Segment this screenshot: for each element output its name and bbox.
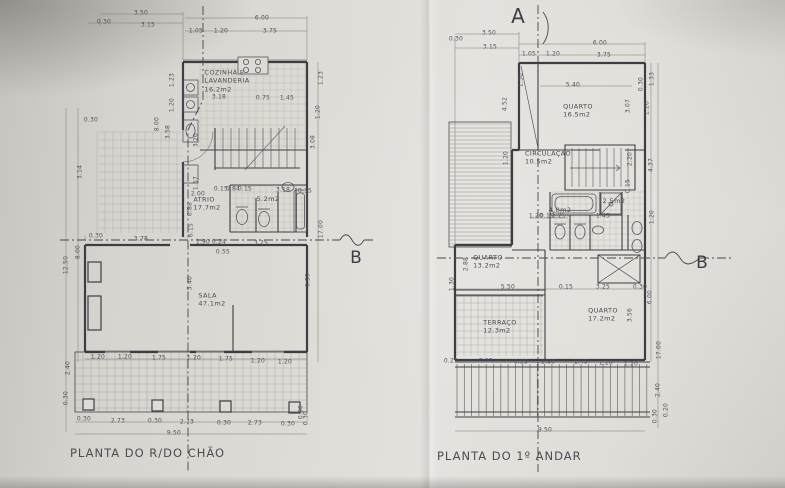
dimension-label: 2.73 <box>111 418 125 425</box>
dimension-label: 6.00 <box>647 290 654 304</box>
dimension-label: 3.56 <box>627 308 634 322</box>
dimension-label: 0.25 <box>444 358 458 365</box>
dimension-label: 0.35 <box>514 359 528 366</box>
room-label-line: CIRCULAÇÃO <box>525 150 571 158</box>
labels-layer: 3.500.303.156.001.051.203.751.231.201.23… <box>0 0 785 488</box>
dimension-label: 3.75 <box>263 28 277 35</box>
dimension-label: 3.75 <box>597 52 611 59</box>
dimension-label: 1.20 <box>546 51 560 58</box>
dimension-label: 0.15 <box>625 179 632 193</box>
room-label-line: 10.5m2 <box>525 158 571 166</box>
dimension-label: 5.40 <box>566 82 580 89</box>
dimension-label: 0.75 <box>256 95 270 102</box>
room-label-line: 4.0m2 <box>549 206 572 214</box>
dimension-label: 1.45 <box>574 359 588 366</box>
room-label-line: 17.7m2 <box>193 204 220 212</box>
dimension-label: 8.00 <box>154 117 161 131</box>
dimension-label: 1.80 <box>541 359 555 366</box>
room-label-line: TERRAÇO <box>483 319 517 327</box>
dimension-label: 0.55 <box>216 249 230 256</box>
dimension-label: 3.08 <box>310 135 317 149</box>
room-label-line: LAVANDERIA <box>204 77 249 85</box>
room-label-line: 13.2m2 <box>473 262 503 270</box>
dimension-label: 0.30 <box>217 420 231 427</box>
dimension-label: 1.20 <box>599 360 613 367</box>
dimension-label: 6.15 <box>188 223 195 237</box>
dimension-label: 1.75 <box>152 355 166 362</box>
dimension-label: 1.20 <box>315 105 322 119</box>
room-label-line: 2.5m2 <box>603 197 626 205</box>
dimension-label: 2.40 <box>65 361 72 375</box>
section-marker-b: B <box>350 248 362 268</box>
room-label-line: 17.2m2 <box>588 315 618 323</box>
room-label: CIRCULAÇÃO10.5m2 <box>525 150 571 167</box>
dimension-label: 1.45 <box>596 213 610 220</box>
dimension-label: 5.40 <box>187 276 194 290</box>
dimension-label: 0.20 <box>663 403 670 417</box>
room-label: QUARTO16.5m2 <box>563 103 593 120</box>
dimension-label: 1.57 <box>193 176 200 190</box>
dimension-label: 6.00 <box>593 40 607 47</box>
dimension-label: 3.78 <box>134 236 148 243</box>
room-label-line: QUARTO <box>588 307 618 315</box>
dimension-label: 0.15 <box>238 186 252 193</box>
room-label-line: 12.3m2 <box>483 327 517 335</box>
dimension-label: 6.00 <box>255 15 269 22</box>
dimension-label: 1.20 <box>649 210 656 224</box>
dimension-label: 12.50 <box>63 256 70 274</box>
dimension-label: 1.20 <box>644 101 651 115</box>
dimension-label: 3.50 <box>482 30 496 37</box>
room-label-line: 5.2m2 <box>257 195 280 203</box>
dimension-label: 0.30 <box>77 416 91 423</box>
dimension-label: 3.07 <box>625 99 632 113</box>
dimension-label: 2.73 <box>180 419 194 426</box>
room-label: QUARTO13.2m2 <box>473 254 503 271</box>
dimension-label: 0.30 <box>148 418 162 425</box>
dimension-label: 1.20 <box>624 361 638 368</box>
dimension-label: 17.00 <box>318 220 325 238</box>
dimension-label: 3.58 <box>165 125 172 139</box>
dimension-label: 0.30 <box>303 411 310 425</box>
dimension-label: 2.20 <box>627 152 634 166</box>
dimension-label: 1.20 <box>118 354 132 361</box>
dimension-label: 3.25 <box>254 240 268 247</box>
dimension-label: 17.00 <box>656 341 663 359</box>
dimension-label: 0.30 <box>89 233 103 240</box>
room-label: ATRIO17.7m2 <box>193 196 220 213</box>
dimension-label: 1.33 <box>649 72 656 86</box>
dimension-label: 4.52 <box>502 97 509 111</box>
dimension-label: 1.20 <box>503 151 510 165</box>
dimension-label: 1.20 <box>169 98 176 112</box>
dimension-label: 3.25 <box>596 284 610 291</box>
dimension-label: 0.30 <box>633 284 647 291</box>
room-label-line: ATRIO <box>193 196 220 204</box>
dimension-label: 1.45 <box>280 95 294 102</box>
dimension-label: 2.88 <box>463 257 470 271</box>
dimension-label: 0.30 <box>281 421 295 428</box>
dimension-label: 1.90 <box>196 239 210 246</box>
dimension-label: 1.20 <box>214 28 228 35</box>
room-label: 2.5m2 <box>603 197 626 205</box>
dimension-label: 3.50 <box>134 10 148 17</box>
dimension-label: 1.20 <box>251 358 265 365</box>
dimension-label: 6.39 <box>305 273 312 287</box>
dimension-label: 3.20 <box>193 133 200 147</box>
dimension-label: 5.50 <box>501 284 515 291</box>
dimension-label: 1.05 <box>189 28 203 35</box>
dimension-label: 3.15 <box>483 44 497 51</box>
section-marker-b: B <box>696 253 708 273</box>
dimension-label: 4.37 <box>648 158 655 172</box>
dimension-label: 1.30 <box>518 73 525 87</box>
dimension-label: 0.30 <box>638 77 645 91</box>
dimension-label: 0.24 <box>212 239 226 246</box>
dimension-label: 0.30 <box>652 409 659 423</box>
room-label: SALA47.1m2 <box>198 292 225 309</box>
dimension-label: 1.75 <box>219 356 233 363</box>
dimension-label: 0.30 <box>97 19 111 26</box>
right-plan-title: PLANTA DO 1º ANDAR <box>437 449 582 463</box>
left-plan-title: PLANTA DO R/DO CHÃO <box>70 446 225 460</box>
dimension-label: 8.00 <box>75 245 82 259</box>
room-label-line: QUARTO <box>473 254 503 262</box>
room-label-line: 16.2m2 <box>204 85 249 93</box>
dimension-label: 3.15 <box>479 358 493 365</box>
dimension-label: 9.50 <box>167 430 181 437</box>
dimension-label: 1.20 <box>278 359 292 366</box>
dimension-label: 1.23 <box>169 73 176 87</box>
dimension-label: 9.50 <box>538 427 552 434</box>
dimension-label: 1.30 <box>449 277 456 291</box>
room-label: 5.2m2 <box>257 195 280 203</box>
dimension-label: 2.40 <box>655 383 662 397</box>
room-label-line: COZINHA E <box>204 68 249 76</box>
dimension-label: 0.35 <box>298 188 312 195</box>
dimension-label: 3.18 <box>276 187 290 194</box>
dimension-label: 1.23 <box>318 71 325 85</box>
room-label-line: 47.1m2 <box>198 300 225 308</box>
dimension-label: 0.30 <box>84 117 98 124</box>
paper-fold-crease <box>420 0 438 488</box>
dimension-label: 1.05 <box>522 51 536 58</box>
room-label: 4.0m2 <box>549 206 572 214</box>
room-label: COZINHA ELAVANDERIA16.2m2 <box>204 68 249 93</box>
room-label: TERRAÇO12.3m2 <box>483 319 517 336</box>
dimension-label: 0.15 <box>559 284 573 291</box>
dimension-label: 0.30 <box>449 36 463 43</box>
bottom-shadow <box>0 476 785 488</box>
dimension-label: 3.18 <box>212 94 226 101</box>
dimension-label: 1.20 <box>91 354 105 361</box>
dimension-label: 3.14 <box>77 165 84 179</box>
dimension-label: 1.20 <box>187 355 201 362</box>
dimension-label: 0.30 <box>63 391 70 405</box>
dimension-label: 3.15 <box>141 22 155 29</box>
dimension-label: 2.73 <box>248 420 262 427</box>
room-label-line: SALA <box>198 292 225 300</box>
room-label: QUARTO17.2m2 <box>588 307 618 324</box>
section-marker-a: A <box>511 4 525 28</box>
room-label-line: 16.5m2 <box>563 111 593 119</box>
room-label-line: QUARTO <box>563 103 593 111</box>
